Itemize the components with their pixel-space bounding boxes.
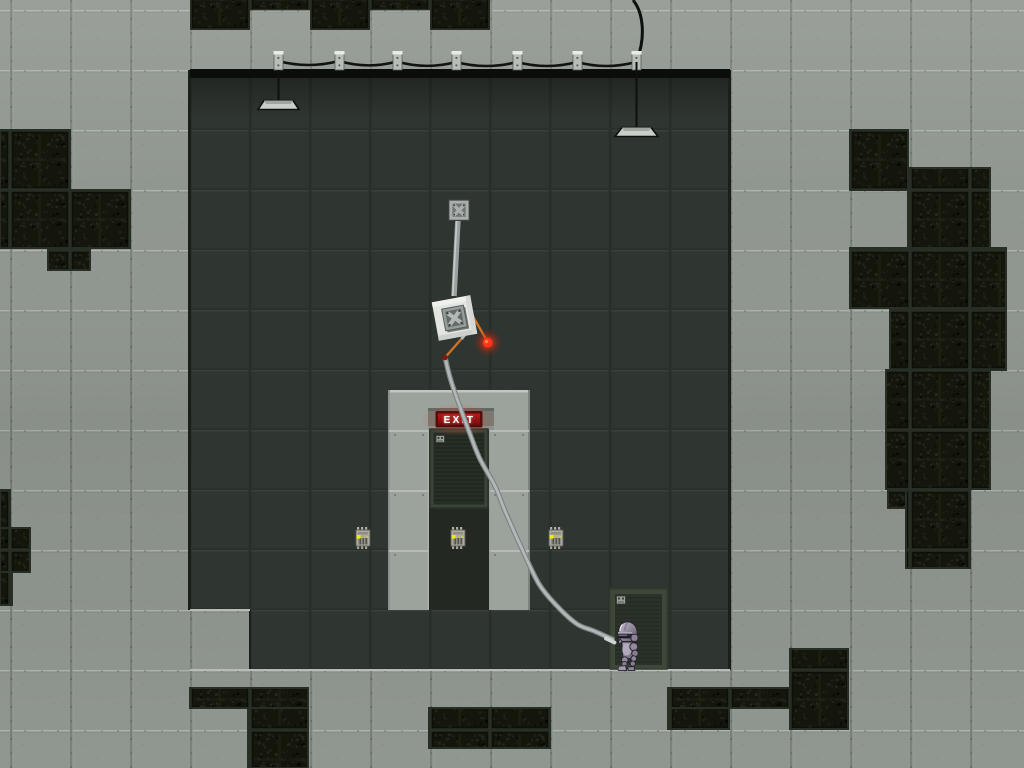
svg-text:EXIT: EXIT <box>444 415 476 426</box>
